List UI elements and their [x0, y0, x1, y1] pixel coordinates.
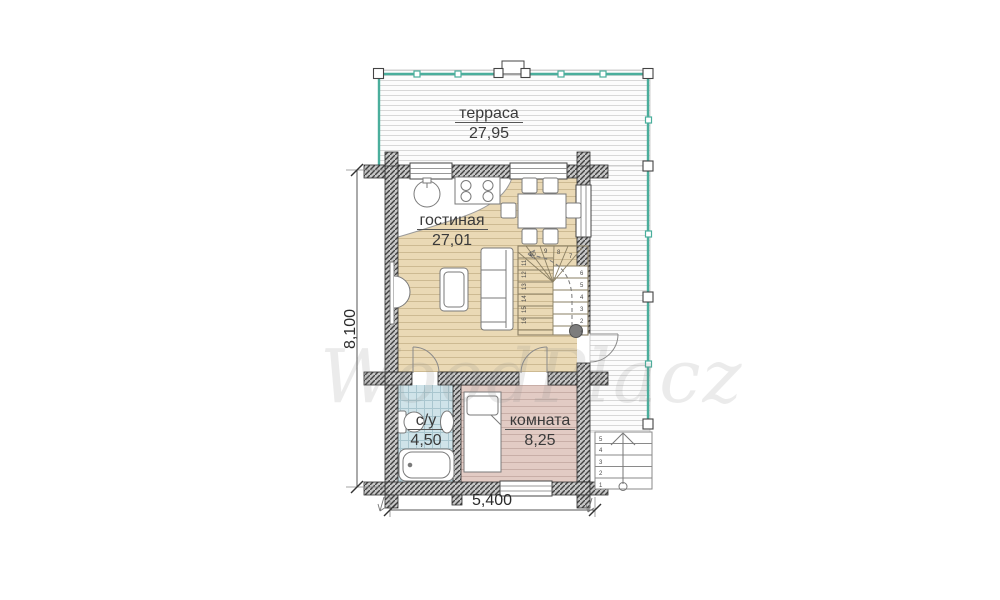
chair: [522, 178, 537, 193]
bathtub: [399, 449, 454, 481]
svg-text:27,95: 27,95: [469, 125, 509, 142]
svg-text:16: 16: [522, 317, 528, 324]
svg-text:10: 10: [529, 252, 536, 258]
coffee-table: [440, 268, 468, 311]
svg-text:4,50: 4,50: [410, 432, 441, 449]
stove: [455, 177, 500, 204]
svg-text:8,25: 8,25: [524, 432, 555, 449]
chair: [501, 203, 516, 218]
watermark: WoodPlacz: [320, 334, 744, 420]
chair: [543, 178, 558, 193]
chair: [543, 229, 558, 244]
svg-text:12: 12: [522, 271, 528, 278]
kitchen-fixtures: [414, 177, 500, 207]
chair: [522, 229, 537, 244]
svg-text:терраса: терраса: [459, 105, 519, 122]
svg-text:13: 13: [522, 283, 528, 290]
dimension-bottom: 5,400: [384, 492, 601, 517]
window-dining: [510, 163, 567, 179]
svg-text:11: 11: [522, 259, 528, 266]
floor-plan-drawing: 1 2 3 4 5 6 7 8 9 10 11 12 13 14 15 16: [0, 0, 1000, 600]
floor-plan-canvas: 1 2 3 4 5 6 7 8 9 10 11 12 13 14 15 16: [0, 0, 1000, 600]
chair: [566, 203, 581, 218]
svg-text:15: 15: [522, 306, 528, 313]
exterior-stairs: 1 2 3 4 5: [595, 432, 652, 491]
sofa: [481, 248, 513, 330]
svg-text:5,400: 5,400: [472, 492, 512, 509]
svg-text:гостиная: гостиная: [419, 212, 484, 229]
svg-text:27,01: 27,01: [432, 232, 472, 249]
svg-text:14: 14: [522, 295, 528, 302]
dining-table: [518, 194, 566, 228]
window-kitchen: [410, 163, 452, 179]
dimension-left: 8,100: [342, 164, 384, 493]
